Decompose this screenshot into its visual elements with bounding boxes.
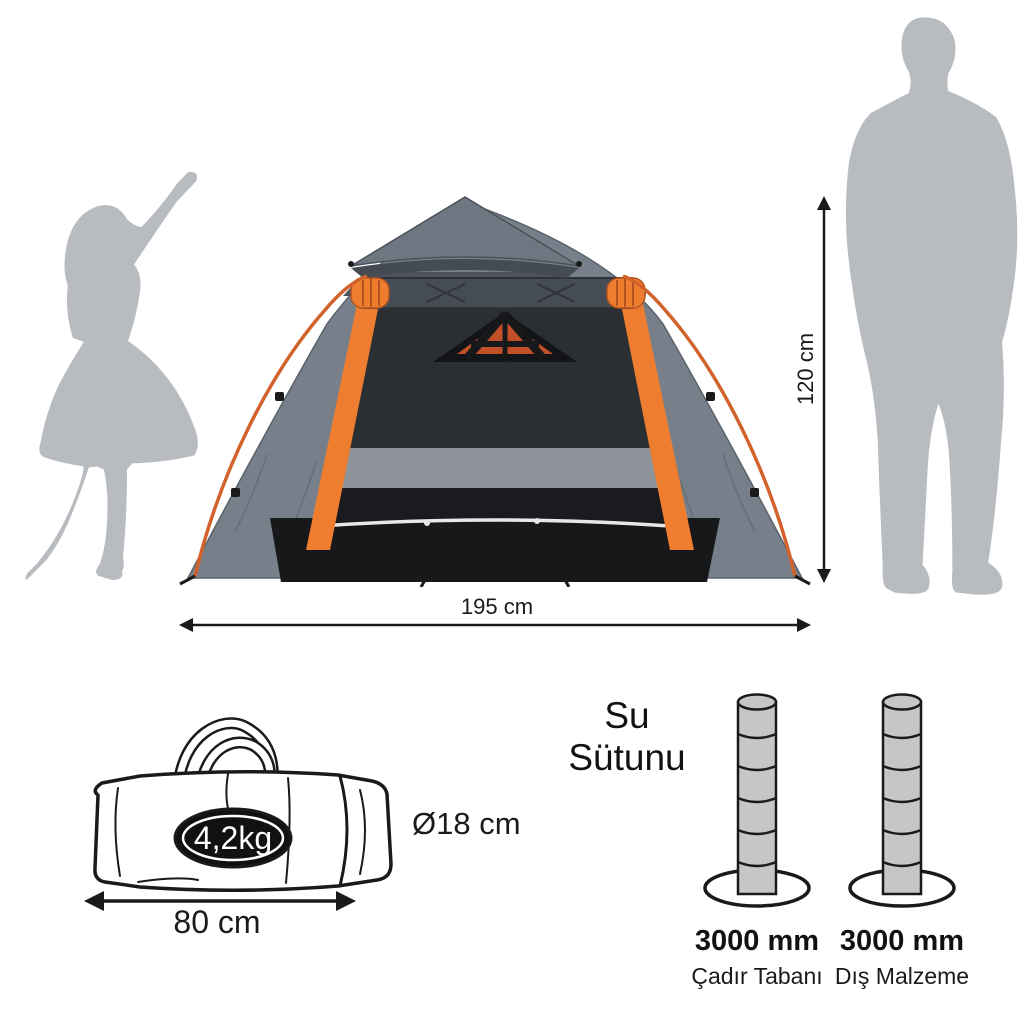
tent-illustration: [175, 192, 815, 587]
tent-peak-cap: [351, 197, 579, 266]
water-column-value-2: 3000 mm: [822, 925, 982, 958]
water-column-caption-2: Dış Malzeme: [822, 963, 982, 990]
tent-inner-band: [328, 448, 672, 488]
infographic-canvas: 120 cm 195 cm: [0, 0, 1024, 1024]
water-column-cylinder-2: [822, 684, 982, 916]
water-column-cylinder-1: [677, 684, 837, 916]
tent-rolled-flap: [351, 278, 645, 308]
peak-clip-right: [576, 261, 582, 267]
zipper-pull-right: [534, 518, 540, 524]
tent-width-dimension-arrow: [175, 612, 815, 638]
water-column-value-1: 3000 mm: [677, 925, 837, 958]
man-silhouette: [835, 12, 1024, 602]
peak-clip-left: [348, 261, 354, 267]
zipper-pull-left: [424, 520, 430, 526]
tent-skirt-front: [275, 522, 715, 582]
bag-weight-label: 4,2kg: [194, 820, 272, 856]
bag-length-label: 80 cm: [137, 904, 297, 941]
flap-cap-right: [607, 278, 645, 308]
tent-height-label: 120 cm: [793, 319, 819, 419]
bag-diameter-label: Ø18 cm: [412, 806, 542, 842]
carry-bag-illustration: 4,2kg: [78, 698, 408, 898]
water-column-caption-1: Çadır Tabanı: [677, 963, 837, 990]
bag-weight-badge: 4,2kg: [175, 809, 291, 867]
